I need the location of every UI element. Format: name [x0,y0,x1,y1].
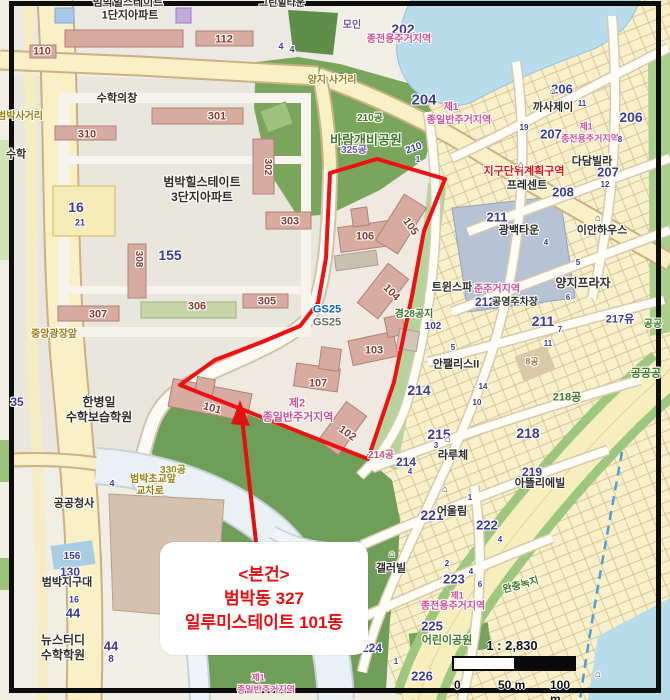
scale-bar: 1 : 2,830 0 50 m 100 m [448,638,598,671]
edge-green [0,440,10,482]
scale-ratio: 1 : 2,830 [450,638,574,653]
scale-track: 0 50 m 100 m [452,656,576,671]
scale-track-filled [514,658,574,669]
park-triangle [288,10,338,55]
scale-tick-100: 100 m [550,678,574,700]
edge-green [0,558,10,590]
subject-callout: <본건> 범박동 327 일루미스테이트 101동 [160,542,368,655]
callout-line-1: <본건> [238,566,289,583]
map-canvas[interactable]: 범박힐스테이트1단지아파트그린힐타운110112모인202종전용주거지역44양지… [0,0,670,700]
scale-tick-50: 50 m [498,678,525,692]
callout-line-2: 범박동 327 [224,590,304,607]
callout-line-3: 일루미스테이트 101동 [185,614,343,631]
scale-tick-0: 0 [454,678,461,692]
